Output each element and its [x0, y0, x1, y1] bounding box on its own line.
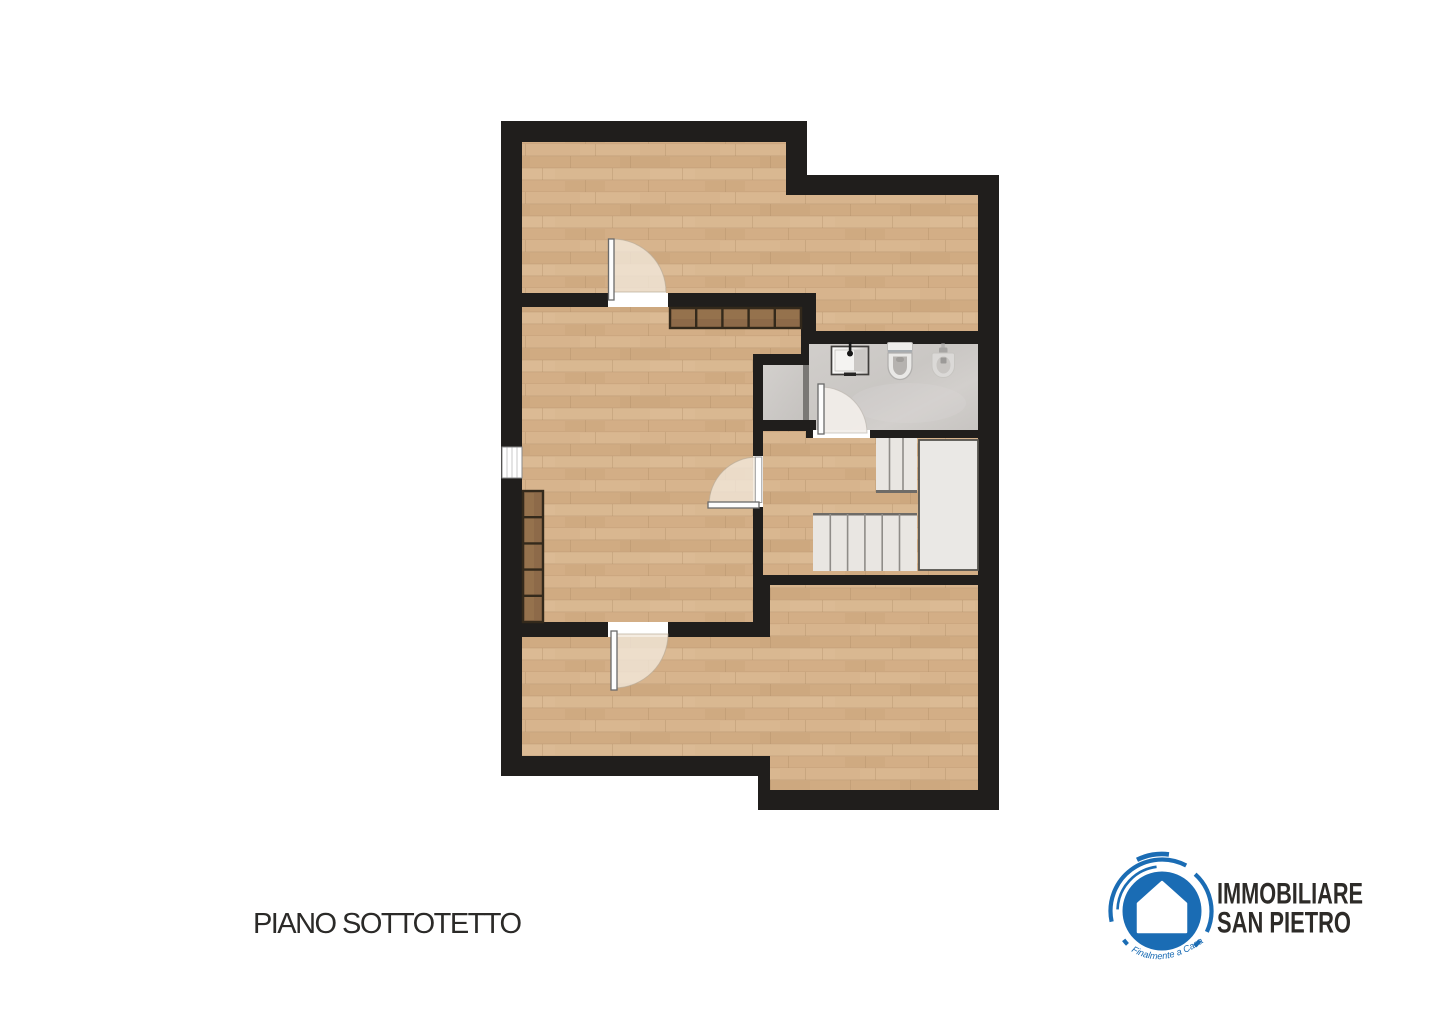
- svg-text:PIANO SOTTOTETTO: PIANO SOTTOTETTO: [253, 908, 523, 940]
- svg-text:SAN PIETRO: SAN PIETRO: [1217, 907, 1351, 940]
